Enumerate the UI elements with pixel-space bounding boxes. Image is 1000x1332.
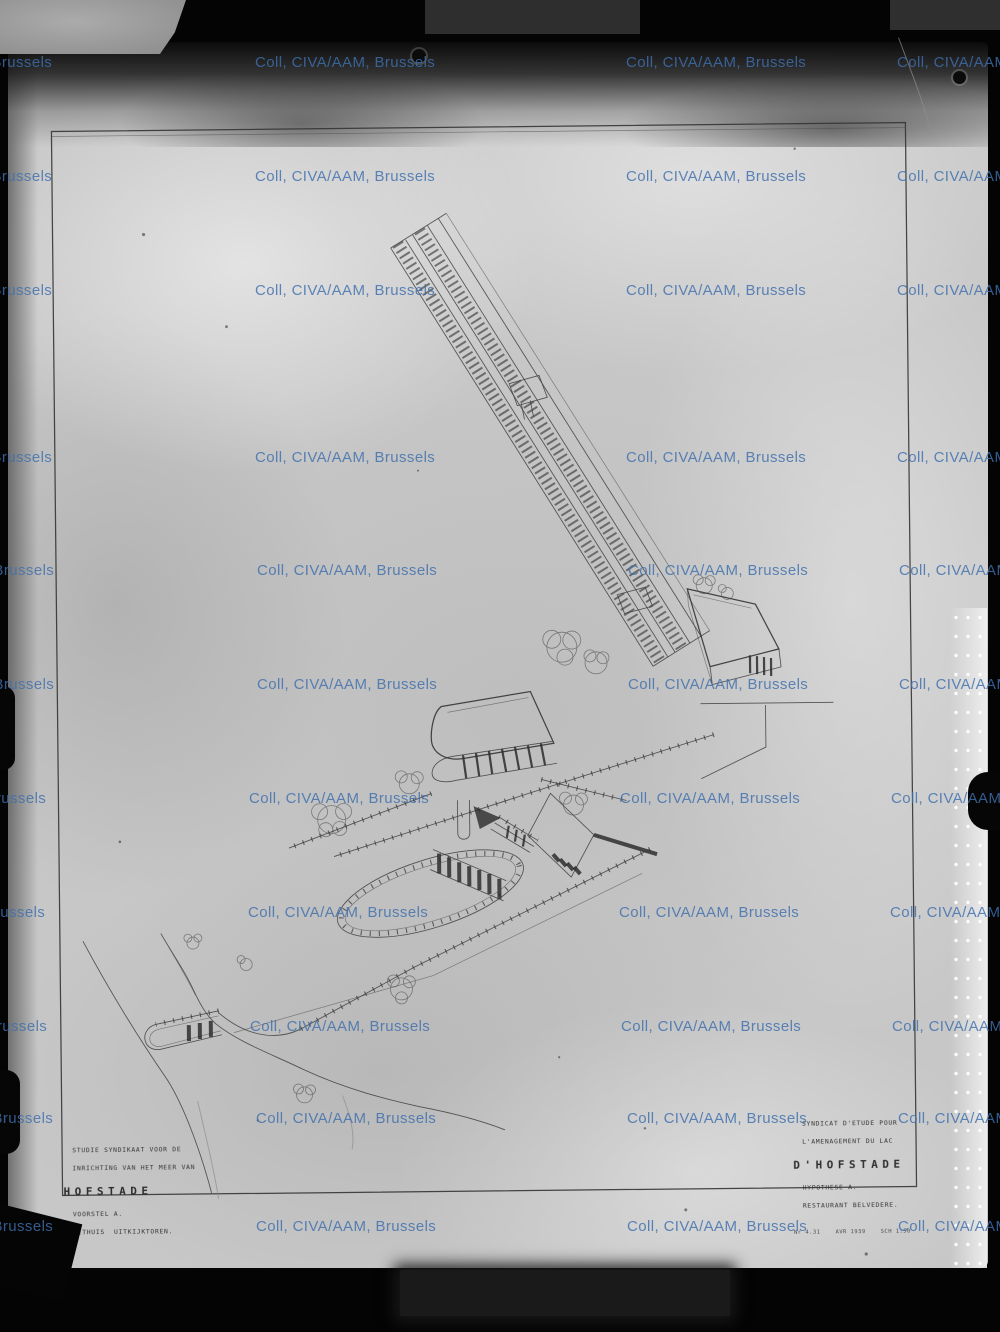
lattice-gallery — [390, 211, 710, 669]
bottom-notch — [400, 1270, 730, 1316]
gable-pavilion — [687, 587, 834, 779]
stair-wedge — [474, 806, 501, 829]
title-line: VOORSTEL A. — [73, 1210, 123, 1219]
pier — [145, 1011, 223, 1050]
plate-edge-speckles — [950, 608, 987, 1268]
title-block-nl: STUDIE SYNDIKAAT VOOR DE INRICHTING VAN … — [63, 1136, 196, 1237]
plate-edge-nick — [0, 1070, 20, 1154]
scanned-plate-photograph: { "watermark": { "text": "Coll, CIVA/AAM… — [0, 0, 1000, 1327]
promenade — [217, 849, 652, 1036]
plate-edge-nick — [968, 772, 1000, 830]
project-title-nl: HOFSTADE — [63, 1183, 195, 1199]
terrace-fences — [288, 735, 715, 857]
sheet-border — [51, 123, 916, 1196]
title-line: SYNDICAT D'ETUDE POUR — [802, 1119, 898, 1128]
restaurant-pavilion — [431, 691, 558, 853]
title-line: HYPOTHESE A. — [803, 1183, 858, 1192]
plate-edge-nick — [0, 686, 15, 770]
title-line: L'AMENAGEMENT DU LAC — [802, 1137, 893, 1146]
title-line: RESTAURANT BELVEDERE. — [803, 1201, 899, 1210]
dust-specks — [111, 147, 867, 1264]
title-line: STUDIE SYNDIKAAT VOOR DE — [72, 1145, 181, 1154]
drawing-area: STUDIE SYNDIKAAT VOOR DE INRICHTING VAN … — [0, 0, 1000, 1332]
plate-creases — [187, 37, 943, 1199]
project-title-fr: D'HOFSTADE — [793, 1157, 910, 1173]
title-line: INRICHTING VAN HET MEER VAN — [72, 1163, 195, 1172]
title-line: EETHUIS UITKIJKTOREN. — [73, 1227, 173, 1236]
drawing-stamp: Nr 4.31 AVR 1939 SCH 1:50 — [794, 1228, 911, 1238]
sunken-garden — [527, 792, 657, 877]
title-block-fr: SYNDICAT D'ETUDE POUR L'AMENAGEMENT DU L… — [793, 1110, 911, 1247]
